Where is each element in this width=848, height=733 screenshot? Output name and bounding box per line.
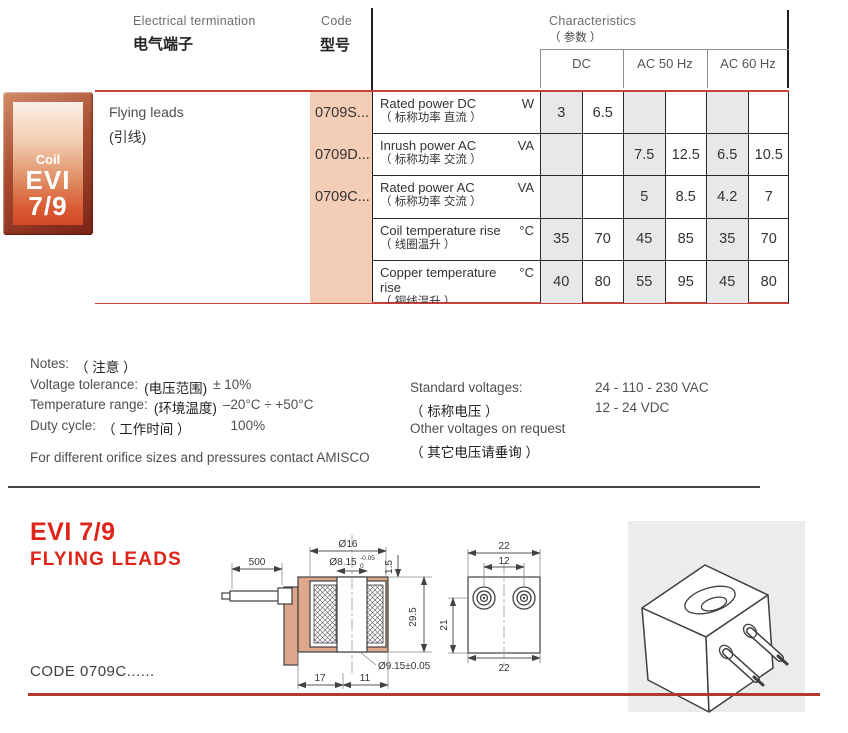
standard-voltages-zh: （ 标称电压 ） [410,400,499,420]
code-caption: CODE 0709C...... [30,663,155,680]
column-ac50: AC 50 Hz [623,56,707,71]
dim-front-bottom-width: 22 [498,663,510,674]
other-voltages-label-en: Other voltages on request [410,421,565,436]
dim-top-tol-upper: -0.05 [360,555,375,562]
dim-front-top-width: 22 [498,541,510,552]
voltage-tolerance-value: ± 10% [213,377,251,397]
value-cell: 6.5 [582,92,624,134]
value-cell [540,176,582,218]
value-cell: 5 [623,176,665,218]
row-desc: Rated power ACVA （ 标称功率 交流 ） [372,176,540,218]
row-label-zh: （ 标称功率 直流 ） [380,111,534,125]
row-unit: °C [519,223,534,238]
row-label-en: Rated power AC [380,180,475,195]
row-label-en: Inrush power AC [380,138,476,153]
row-label-zh: （ 标称功率 交流 ） [380,195,534,209]
row-unit: °C [519,265,534,295]
badge-series-label: EVI [26,167,71,193]
header-electrical-termination-zh: 电气端子 [133,33,193,54]
value-cell [540,134,582,176]
value-cell: 6.5 [706,134,748,176]
row-label-en: Rated power DC [380,96,476,111]
notes-heading: Notes: （ 注意 ） [30,356,137,376]
value-cell: 70 [582,219,624,261]
technical-drawing: 500 Ø16 Ø8.15 -0.05 0 1.5 29.5 Ø9.15±0.0… [160,505,848,717]
dim-lead-length: 500 [249,557,266,568]
isometric-coil-sketch [642,565,787,712]
row-label-en: Coil temperature rise [380,223,501,238]
row-unit: W [522,96,534,111]
value-cell [665,92,707,134]
page-bottom-rule [28,693,820,696]
duty-cycle-value: 100% [231,418,266,438]
section-title: EVI 7/9 [30,518,116,547]
value-cell: 45 [706,261,748,303]
value-cell: 80 [582,261,624,303]
value-cell: 12.5 [665,134,707,176]
header-electrical-termination-en: Electrical termination [133,14,256,28]
note-duty-cycle: Duty cycle: （ 工作时间 ） 100% [30,418,265,438]
notes-label-en: Notes: [30,356,69,376]
voltage-tolerance-en: Voltage tolerance: [30,377,138,397]
value-cell [748,92,790,134]
value-cell: 3 [540,92,582,134]
column-dc: DC [540,56,623,71]
row-label-zh: （ 标称功率 交流 ） [380,153,534,167]
note-contact: For different orifice sizes and pressure… [30,450,370,465]
value-cell: 45 [623,219,665,261]
dim-top-tol-lower: 0 [360,563,364,570]
header-code-zh: 型号 [320,34,350,55]
temperature-range-zh: (环境温度) [154,397,217,417]
row-label-zh: （ 铜线温升 ） [380,295,534,303]
vdc-values: 12 - 24 VDC [595,400,669,415]
termination-label-en: Flying leads [109,104,310,120]
row-label-zh: （ 线圈温升 ） [380,238,534,252]
dim-step-height: 1.5 [384,560,395,574]
value-cell: 7.5 [623,134,665,176]
value-cell [582,134,624,176]
coil-series-badge-face: Coil EVI 7/9 [13,102,83,225]
termination-label-zh: (引线) [109,127,310,147]
cross-section-view: 500 Ø16 Ø8.15 -0.05 0 1.5 29.5 Ø9.15±0.0… [222,535,432,689]
dim-top-diameter: Ø8.15 [329,557,357,568]
row-desc: Coil temperature rise°C （ 线圈温升 ） [372,219,540,261]
duty-cycle-zh: （ 工作时间 ） [102,418,191,438]
vac-values: 24 - 110 - 230 VAC [595,380,709,395]
row-unit: VA [518,138,534,153]
value-cell: 85 [665,219,707,261]
column-ac60: AC 60 Hz [707,56,789,71]
row-desc: Rated power DCW （ 标称功率 直流 ） [372,92,540,134]
code-0709s: 0709S... [310,92,372,134]
row-desc: Copper temperature rise°C （ 铜线温升 ） [372,261,540,303]
voltage-tolerance-zh: (电压范围) [144,377,207,397]
note-voltage-tolerance: Voltage tolerance: (电压范围) ± 10% [30,377,251,397]
other-voltages-label-zh: （ 其它电压请垂询 ） [410,441,539,461]
header-characteristics-zh: （ 参数 ） [549,29,601,45]
value-cell: 35 [540,219,582,261]
dim-base-left: 17 [314,673,326,684]
value-cell: 55 [623,261,665,303]
header-characteristics-en: Characteristics [549,14,636,28]
temperature-range-en: Temperature range: [30,397,148,417]
winding-hatch-right [366,585,383,643]
code-column: 0709S... 0709D... 0709C... [310,92,372,303]
header-code-en: Code [321,14,352,28]
value-cell: 8.5 [665,176,707,218]
characteristics-table: Rated power DCW （ 标称功率 直流 ） 3 6.5 Inrush… [372,92,789,303]
value-cell [706,92,748,134]
standard-voltages-vac: 24 - 110 - 230 VAC [595,380,709,395]
badge-size-label: 7/9 [28,193,67,219]
dim-base-right: 11 [360,673,371,684]
dim-front-pin-pitch: 12 [498,556,510,567]
standard-voltages-vdc: 12 - 24 VDC [595,400,669,415]
standard-voltages-label-en: Standard voltages: [410,380,523,395]
value-cell [582,176,624,218]
row-desc: Inrush power ACVA （ 标称功率 交流 ） [372,134,540,176]
value-cell: 80 [748,261,790,303]
dim-front-pin-height: 21 [439,619,450,631]
value-cell: 4.2 [706,176,748,218]
standard-voltages-en: Standard voltages: [410,380,523,395]
section-divider-line [8,486,760,488]
duty-cycle-en: Duty cycle: [30,418,96,438]
winding-hatch-left [314,585,336,643]
value-cell: 95 [665,261,707,303]
dim-coil-height: 29.5 [408,607,419,627]
other-voltages-zh: （ 其它电压请垂询 ） [410,441,539,461]
dim-coil-diameter: Ø16 [339,539,358,550]
value-cell: 10.5 [748,134,790,176]
termination-cell: Flying leads (引线) [95,92,310,303]
other-voltages-en: Other voltages on request [410,421,565,436]
value-cell [623,92,665,134]
contact-amisco-text: For different orifice sizes and pressure… [30,450,370,465]
front-view: 22 12 21 22 [439,541,540,674]
value-cell: 7 [748,176,790,218]
datasheet-page: Electrical termination 电气端子 Code 型号 Char… [0,0,848,733]
code-0709c: 0709C... [310,176,372,218]
row-label-en: Copper temperature rise [380,265,519,295]
notes-label-zh: （ 注意 ） [75,356,137,376]
temperature-range-value: –20°C ÷ +50°C [223,397,314,417]
value-cell: 70 [748,219,790,261]
row-unit: VA [518,180,534,195]
characteristics-underline [540,49,789,50]
coil-series-badge: Coil EVI 7/9 [3,92,93,235]
value-cell: 35 [706,219,748,261]
code-0709d: 0709D... [310,134,372,176]
dim-bottom-diameter: Ø9.15±0.05 [378,661,431,672]
standard-voltages-label-zh: （ 标称电压 ） [410,400,499,420]
value-cell: 40 [540,261,582,303]
note-temperature-range: Temperature range: (环境温度) –20°C ÷ +50°C [30,397,313,417]
